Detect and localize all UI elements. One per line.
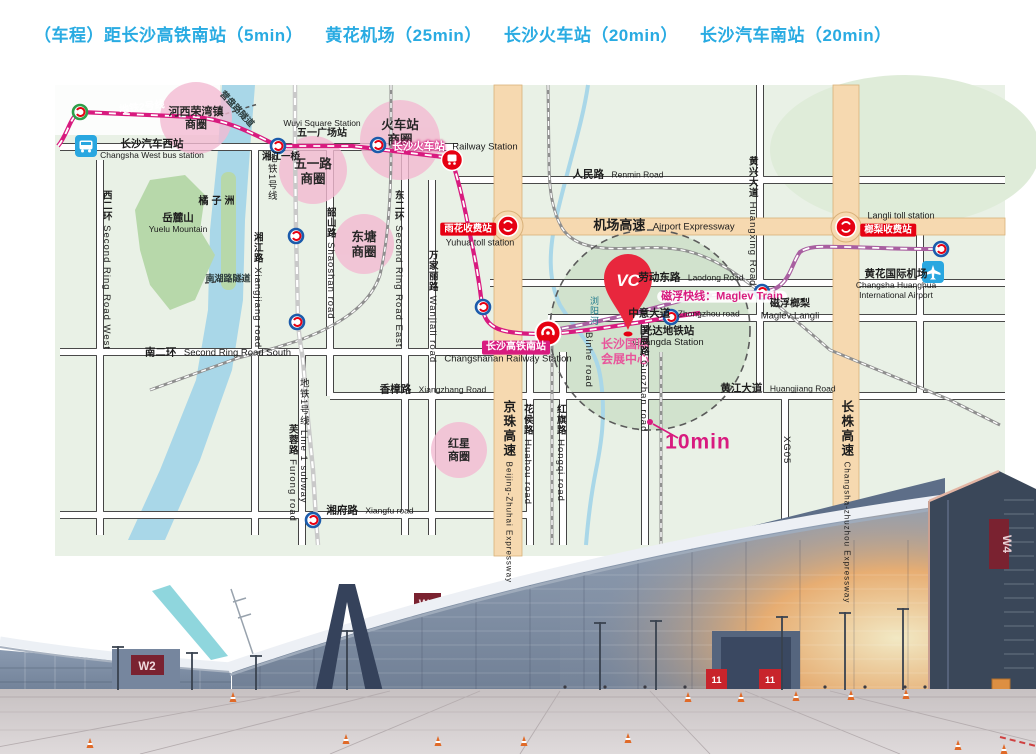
district-hongxing: 红星商圈	[448, 438, 470, 464]
jingzhu-expressway-label: 京珠高速 Beijing-Zhuhai Expressway	[502, 400, 515, 583]
langli-toll-label-zh: 榔梨收费站	[860, 220, 916, 239]
furong-road-label: 芙蓉路 Furong road	[287, 424, 297, 522]
shaoshan-road-label: 韶山路 Shaoshan road	[325, 207, 335, 320]
huahou-road-label: 花侯路 Huahou road	[522, 404, 532, 505]
right-wedge	[929, 471, 1036, 707]
banner-1-text: 11	[711, 675, 722, 686]
district-dongtang: 东塘商圈	[351, 230, 376, 260]
metro-line1-label-top: 地铁1号线	[266, 153, 276, 201]
xiangjiang-road-label: 湘江路 Xiangjiang road	[252, 232, 262, 348]
huangjiang-road-label: 黄江大道 Huangjiang Road	[720, 379, 835, 398]
teal-spire	[152, 585, 228, 660]
second-ring-east-label: 东二环 Second Ring Road East	[393, 190, 403, 348]
orange-isle-label: 橘子洲	[199, 196, 238, 208]
xg05-label: XG05	[781, 436, 791, 464]
w2-sign-text: W2	[138, 661, 155, 673]
plaza	[0, 689, 1036, 754]
crane	[231, 589, 253, 654]
convention-center-photo: W4 W2	[0, 0, 1036, 754]
second-ring-west-label: 西二环 Second Ring Road West	[101, 190, 111, 350]
huangxing-road-label: 黄兴大道 Huangxing Road	[747, 156, 757, 286]
xiangfu-road-label: 湘府路 Xiangfu road	[326, 501, 413, 520]
wanjiali-road-label: 万家丽路 Wanjiali road	[427, 250, 437, 363]
binhe-road-label: Binhe road	[583, 332, 593, 388]
south-station-label-en: Changshanan Railway Station	[444, 353, 571, 364]
huanghua-airport-label: 黄花国际机场 Changsha Huanghua International A…	[856, 268, 936, 300]
railway-station-label: 长沙火车站 Railway Station	[392, 137, 517, 156]
page: VC （车程）距长沙高铁南站（5min）黄花机场（25min）长沙火车站（20m…	[0, 0, 1036, 754]
yuhua-toll-label-en: Yuhua toll station	[446, 238, 515, 249]
changzhu-expressway-label: 长株高速 Changsha-zhuzhou Expressway	[840, 400, 853, 603]
airport-expressway-label: 机场高速 Airport Expressway	[593, 217, 734, 236]
xiangzhang-road-label: 香樟路 Xiangzhang Road	[380, 380, 487, 399]
w4-side-sign-text: W4	[1000, 535, 1014, 553]
yuhua-toll-label-zh: 雨花收费站	[440, 219, 496, 238]
ten-min-label: 10min	[665, 431, 731, 456]
nanhu-tunnel-label: 南湖路隧道	[205, 274, 250, 285]
guozhan-road-label: 国展路 Guozhan road	[638, 325, 648, 432]
liuyang-river-label: 浏阳河	[589, 296, 599, 326]
banner-2-text: 11	[765, 675, 776, 686]
district-hexi: 河西荣湾镇商圈	[169, 106, 224, 132]
west-bus-station-label: 长沙汽车西站 Changsha West bus station	[100, 138, 204, 160]
second-ring-south-label: 南二环 Second Ring Road South	[145, 343, 291, 362]
renmin-road-label: 人民路 Renmin Road	[573, 165, 664, 184]
zhongzhou-road-label: 中意大道 Zhongzhou road	[628, 304, 739, 323]
yuelu-mountain-label: 岳麓山 Yuelu Mountain	[149, 212, 208, 234]
metro-line1-label-bottom: 地铁1号线 Line 1 subway	[298, 378, 308, 504]
laodong-road-label: 劳动东路 Laodong Road	[638, 268, 743, 287]
hongqi-road-label: 红旗路 Hongqi road	[555, 404, 565, 502]
wuyi-square-station-label: Wuyi Square Station 五一广场站	[283, 118, 360, 140]
maglev-langli-label: 磁浮榔梨 Maglev Langli	[761, 299, 820, 322]
